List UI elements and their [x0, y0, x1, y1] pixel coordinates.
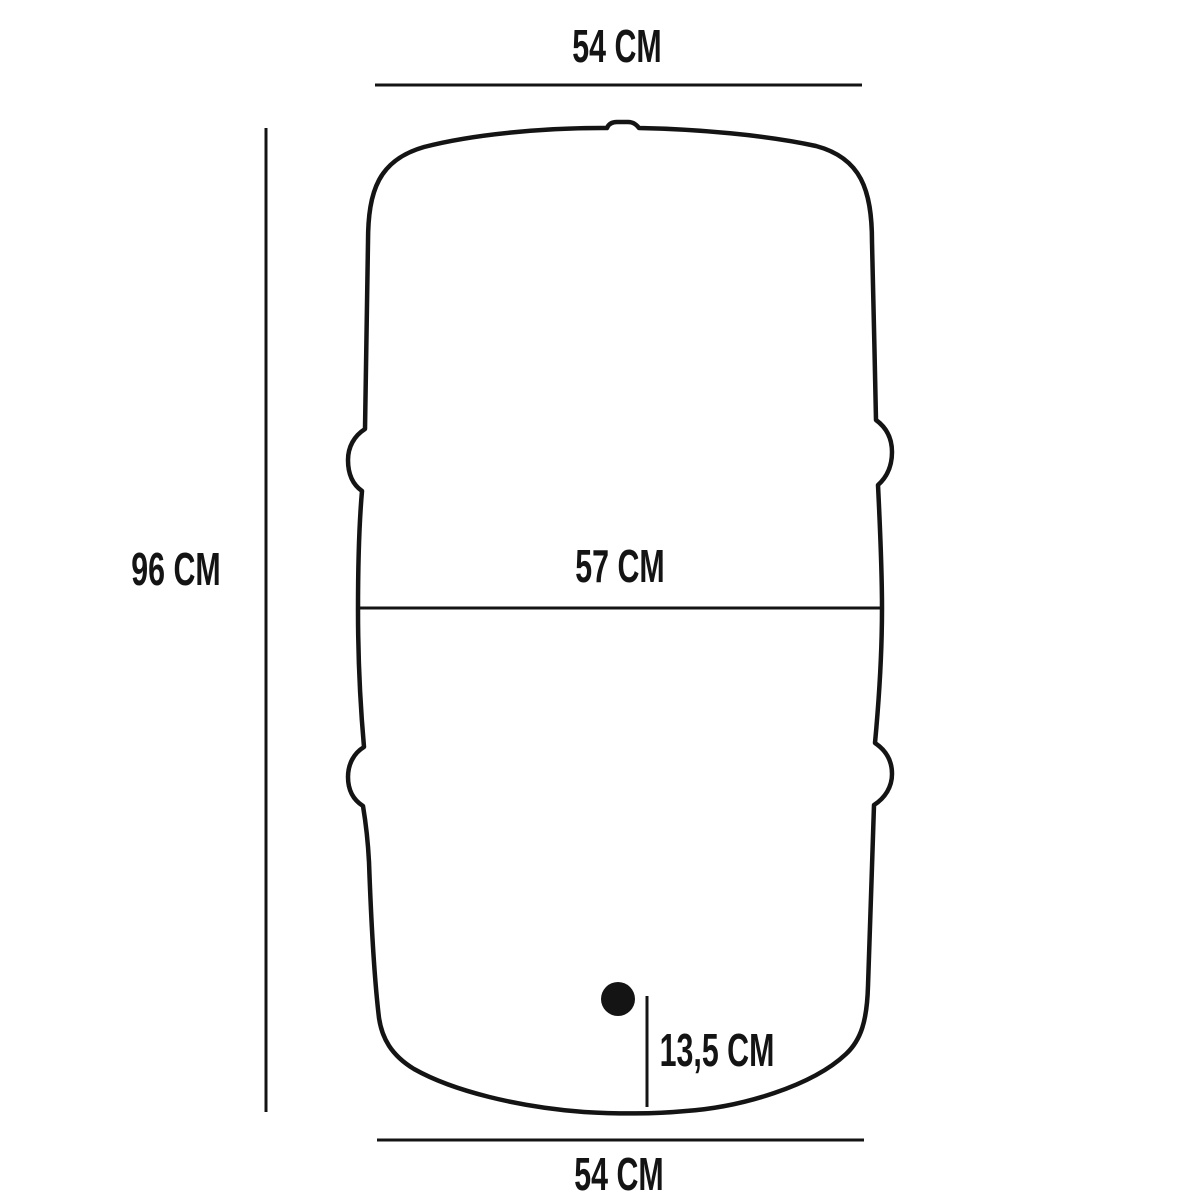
middle-width-label: 57 CM: [575, 542, 664, 593]
height-label: 96 CM: [131, 545, 220, 596]
outlet-dot: [601, 982, 635, 1016]
bottom-width-label: 54 CM: [574, 1150, 663, 1200]
tank-outline: [348, 122, 892, 1113]
diagram-page: 54 CM 96 CM 57 CM 13,5 CM 54 CM: [0, 0, 1200, 1200]
dimension-diagram: 54 CM 96 CM 57 CM 13,5 CM 54 CM: [0, 0, 1200, 1200]
outlet-offset-label: 13,5 CM: [660, 1026, 775, 1077]
top-width-label: 54 CM: [572, 22, 661, 73]
